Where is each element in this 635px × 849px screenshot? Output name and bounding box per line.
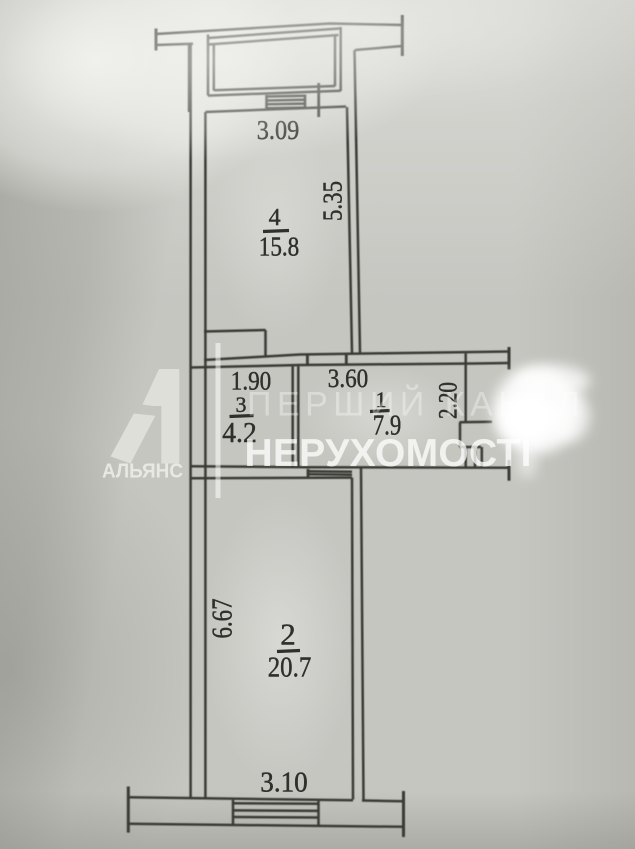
- svg-text:НЕРУХОМОСТІ: НЕРУХОМОСТІ: [245, 432, 532, 475]
- svg-text:20.7: 20.7: [268, 653, 312, 684]
- svg-text:АЛЬЯНС: АЛЬЯНС: [102, 461, 183, 483]
- svg-text:3: 3: [236, 392, 247, 417]
- svg-text:3.10: 3.10: [260, 768, 308, 799]
- svg-text:6.67: 6.67: [207, 599, 238, 639]
- svg-text:15.8: 15.8: [259, 232, 300, 262]
- svg-text:4: 4: [269, 205, 281, 231]
- svg-text:2: 2: [280, 617, 296, 652]
